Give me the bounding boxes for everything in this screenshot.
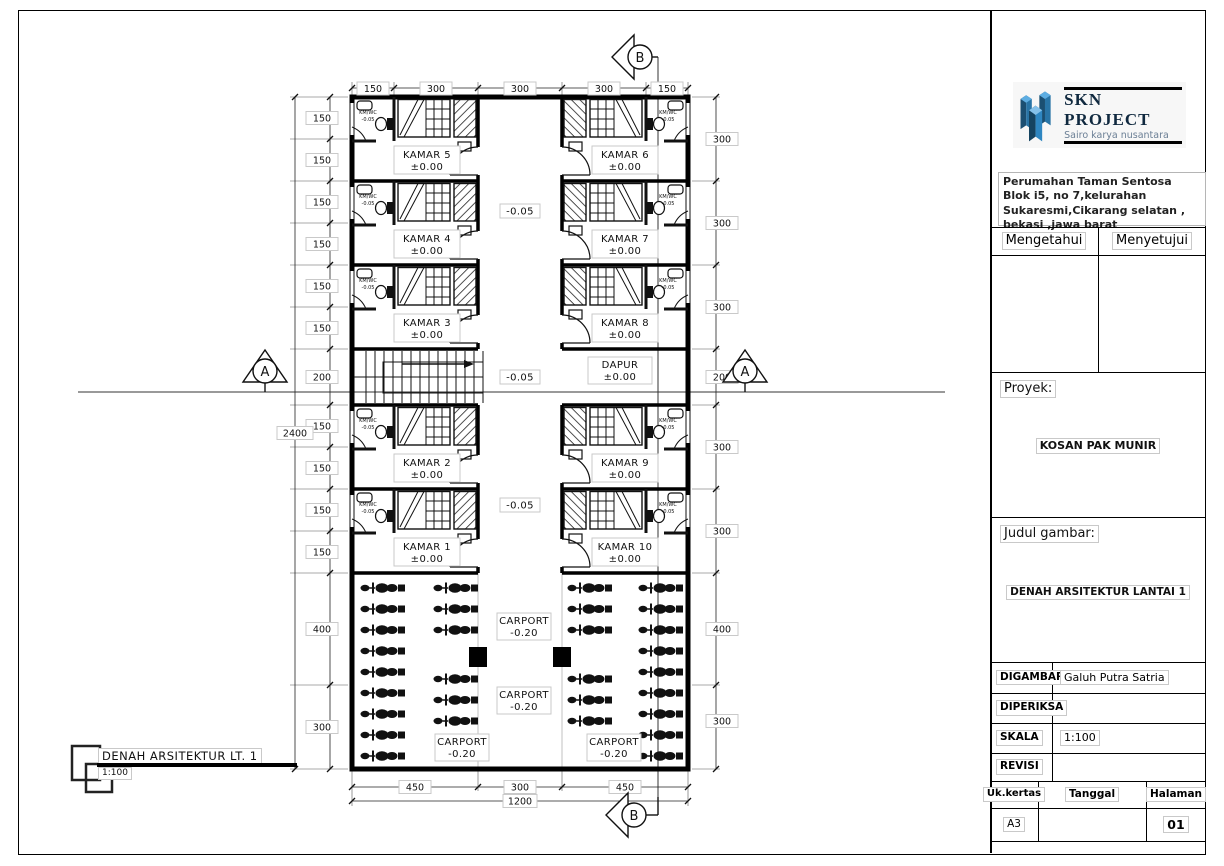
svg-text:KM/WC: KM/WC: [359, 418, 377, 424]
revision-row: REVISI: [996, 753, 1043, 781]
staircase: [354, 351, 483, 403]
svg-text:A: A: [261, 365, 270, 380]
scale-label: SKALA: [996, 730, 1043, 745]
svg-text:400: 400: [313, 625, 331, 636]
floor-plan: KM/WC-0.05 KM/WC-0.05 KM/WC-0.05 KM/WC-0…: [0, 0, 990, 866]
svg-text:150: 150: [364, 84, 382, 95]
drawn-row: DIGAMBAR: [996, 662, 1068, 693]
approve-right-cell: Menyetujui: [1098, 227, 1206, 255]
svg-text:-0.05: -0.05: [362, 117, 375, 123]
paper-header-cell: Uk.kertas: [990, 781, 1038, 808]
svg-text:CARPORT: CARPORT: [437, 737, 487, 748]
svg-text:-0.05: -0.05: [362, 201, 375, 207]
drawn-label: DIGAMBAR: [996, 670, 1068, 685]
project-name: KOSAN PAK MUNIR: [1036, 438, 1160, 454]
svg-text:B: B: [630, 809, 639, 824]
svg-text:150: 150: [313, 240, 331, 251]
drawing-title-section: Judul gambar:: [1000, 522, 1099, 543]
svg-text:2400: 2400: [283, 429, 307, 440]
svg-text:150: 150: [313, 114, 331, 125]
logo-buildings-icon: [1013, 86, 1058, 144]
drawing-title-label: Judul gambar:: [1000, 525, 1099, 543]
checked-label: DIPERIKSA: [996, 700, 1067, 715]
svg-text:-0.20: -0.20: [510, 628, 538, 639]
svg-text:DAPUR: DAPUR: [602, 360, 639, 371]
tb-rule: [990, 841, 1206, 842]
drawing-sheet: KM/WC-0.05 KM/WC-0.05 KM/WC-0.05 KM/WC-0…: [0, 0, 1224, 866]
svg-text:A: A: [741, 365, 750, 380]
svg-text:1200: 1200: [508, 797, 532, 808]
project-section: Proyek:: [1000, 377, 1056, 398]
drawn-value: Galuh Putra Satria: [1060, 670, 1169, 686]
svg-text:150: 150: [313, 422, 331, 433]
svg-text:300: 300: [713, 443, 731, 454]
svg-text:150: 150: [313, 464, 331, 475]
drawn-value-wrap: Galuh Putra Satria: [1060, 662, 1169, 693]
svg-text:300: 300: [595, 84, 613, 95]
svg-text:±0.00: ±0.00: [411, 554, 444, 565]
date-value-cell: [1038, 808, 1146, 841]
svg-text:-0.05: -0.05: [662, 425, 675, 431]
svg-text:-0.05: -0.05: [662, 285, 675, 291]
svg-text:400: 400: [713, 625, 731, 636]
svg-text:-0.05: -0.05: [362, 285, 375, 291]
svg-text:-0.05: -0.05: [662, 117, 675, 123]
svg-text:150: 150: [313, 324, 331, 335]
page-label: Halaman: [1146, 787, 1206, 802]
titleblock-divider: [990, 10, 992, 853]
svg-text:-0.05: -0.05: [362, 425, 375, 431]
logo-title: SKN PROJECT: [1064, 90, 1186, 130]
svg-text:±0.00: ±0.00: [604, 372, 637, 383]
scale-row: SKALA: [996, 723, 1043, 753]
svg-text:-0.05: -0.05: [662, 509, 675, 515]
svg-text:KM/WC: KM/WC: [359, 502, 377, 508]
svg-text:300: 300: [713, 219, 731, 230]
paper-value: A3: [1003, 817, 1025, 832]
svg-text:-0.05: -0.05: [506, 373, 534, 384]
section-marker-b-top: B: [612, 35, 658, 79]
svg-text:KAMAR 10: KAMAR 10: [598, 542, 653, 553]
menyetujui-label: Menyetujui: [1112, 232, 1192, 250]
approve-divider: [1098, 227, 1099, 372]
approve-left-cell: Mengetahui: [990, 227, 1098, 255]
svg-text:±0.00: ±0.00: [411, 470, 444, 481]
svg-text:CARPORT: CARPORT: [589, 737, 639, 748]
svg-text:KAMAR 4: KAMAR 4: [403, 234, 451, 245]
svg-text:KAMAR 1: KAMAR 1: [403, 542, 451, 553]
drawing-title-value: DENAH ARSITEKTUR LANTAI 1: [1006, 585, 1190, 600]
page-header-cell: Halaman: [1146, 781, 1206, 808]
drawing-title-wrap: DENAH ARSITEKTUR LANTAI 1: [990, 585, 1206, 600]
svg-text:KAMAR 5: KAMAR 5: [403, 150, 451, 161]
svg-text:150: 150: [313, 282, 331, 293]
svg-text:KM/WC: KM/WC: [359, 110, 377, 116]
date-header-cell: Tanggal: [1038, 781, 1146, 808]
svg-text:KM/WC: KM/WC: [359, 278, 377, 284]
svg-text:300: 300: [313, 723, 331, 734]
project-value-wrap: KOSAN PAK MUNIR: [990, 438, 1206, 454]
svg-text:300: 300: [713, 717, 731, 728]
svg-text:±0.00: ±0.00: [609, 330, 642, 341]
svg-text:±0.00: ±0.00: [609, 554, 642, 565]
svg-text:-0.20: -0.20: [448, 749, 476, 760]
svg-text:150: 150: [658, 84, 676, 95]
section-marker-b-bottom: B: [606, 793, 658, 837]
svg-text:-0.20: -0.20: [600, 749, 628, 760]
svg-text:-0.05: -0.05: [362, 509, 375, 515]
svg-text:KM/WC: KM/WC: [659, 110, 677, 116]
svg-text:-0.20: -0.20: [510, 702, 538, 713]
svg-text:150: 150: [313, 156, 331, 167]
revision-label: REVISI: [996, 759, 1043, 774]
footer-underline: [97, 763, 297, 767]
svg-text:KAMAR 7: KAMAR 7: [601, 234, 649, 245]
svg-text:450: 450: [406, 783, 424, 794]
page-value-cell: 01: [1146, 808, 1206, 841]
svg-text:300: 300: [713, 135, 731, 146]
svg-text:CARPORT: CARPORT: [499, 690, 549, 701]
svg-text:300: 300: [511, 783, 529, 794]
paper-value-cell: A3: [990, 808, 1038, 841]
carport-labels: CARPORT-0.20 CARPORT-0.20 CARPORT-0.20 C…: [435, 613, 641, 761]
svg-text:300: 300: [713, 527, 731, 538]
svg-text:300: 300: [427, 84, 445, 95]
tb-rule: [990, 517, 1206, 518]
corridor-labels: -0.05 -0.05 -0.05: [500, 204, 540, 512]
svg-text:150: 150: [313, 198, 331, 209]
svg-text:KM/WC: KM/WC: [659, 278, 677, 284]
svg-text:200: 200: [313, 373, 331, 384]
scale-value-wrap: 1:100: [1060, 723, 1100, 753]
svg-text:±0.00: ±0.00: [609, 162, 642, 173]
carport-column: [469, 647, 487, 667]
svg-text:-0.05: -0.05: [662, 201, 675, 207]
svg-text:±0.00: ±0.00: [411, 330, 444, 341]
footer-scale: 1:100: [98, 767, 132, 780]
company-logo: SKN PROJECT Sairo karya nusantara: [1013, 82, 1186, 148]
svg-text:300: 300: [713, 303, 731, 314]
svg-text:-0.05: -0.05: [506, 501, 534, 512]
svg-text:±0.00: ±0.00: [411, 162, 444, 173]
project-label: Proyek:: [1000, 380, 1056, 398]
svg-text:±0.00: ±0.00: [411, 246, 444, 257]
svg-text:KAMAR 8: KAMAR 8: [601, 318, 649, 329]
paper-label: Uk.kertas: [983, 787, 1045, 802]
logo-rule-bottom: [1064, 141, 1182, 144]
svg-text:300: 300: [511, 84, 529, 95]
svg-text:KM/WC: KM/WC: [659, 194, 677, 200]
footer-drawing-title: DENAH ARSITEKTUR LT. 1: [98, 748, 262, 764]
svg-text:CARPORT: CARPORT: [499, 616, 549, 627]
svg-text:B: B: [636, 51, 645, 66]
svg-text:KAMAR 2: KAMAR 2: [403, 458, 451, 469]
section-marker-a-left: A: [243, 350, 287, 392]
svg-text:-0.05: -0.05: [506, 207, 534, 218]
logo-subtitle: Sairo karya nusantara: [1064, 130, 1186, 141]
svg-text:150: 150: [313, 548, 331, 559]
svg-text:±0.00: ±0.00: [609, 470, 642, 481]
svg-text:±0.00: ±0.00: [609, 246, 642, 257]
svg-text:KAMAR 9: KAMAR 9: [601, 458, 649, 469]
svg-text:KM/WC: KM/WC: [659, 418, 677, 424]
svg-text:KAMAR 6: KAMAR 6: [601, 150, 649, 161]
tb-rule: [990, 372, 1206, 373]
project-address: Perumahan Taman Sentosa Blok i5, no 7,ke…: [998, 172, 1206, 226]
mengetahui-label: Mengetahui: [1002, 232, 1087, 250]
checked-row: DIPERIKSA: [996, 693, 1067, 723]
carport-column: [553, 647, 571, 667]
date-label: Tanggal: [1065, 787, 1119, 802]
page-value: 01: [1163, 816, 1188, 834]
svg-text:KAMAR 3: KAMAR 3: [403, 318, 451, 329]
svg-text:450: 450: [616, 783, 634, 794]
scale-value: 1:100: [1060, 730, 1100, 746]
svg-text:150: 150: [313, 506, 331, 517]
svg-text:KM/WC: KM/WC: [659, 502, 677, 508]
svg-text:KM/WC: KM/WC: [359, 194, 377, 200]
